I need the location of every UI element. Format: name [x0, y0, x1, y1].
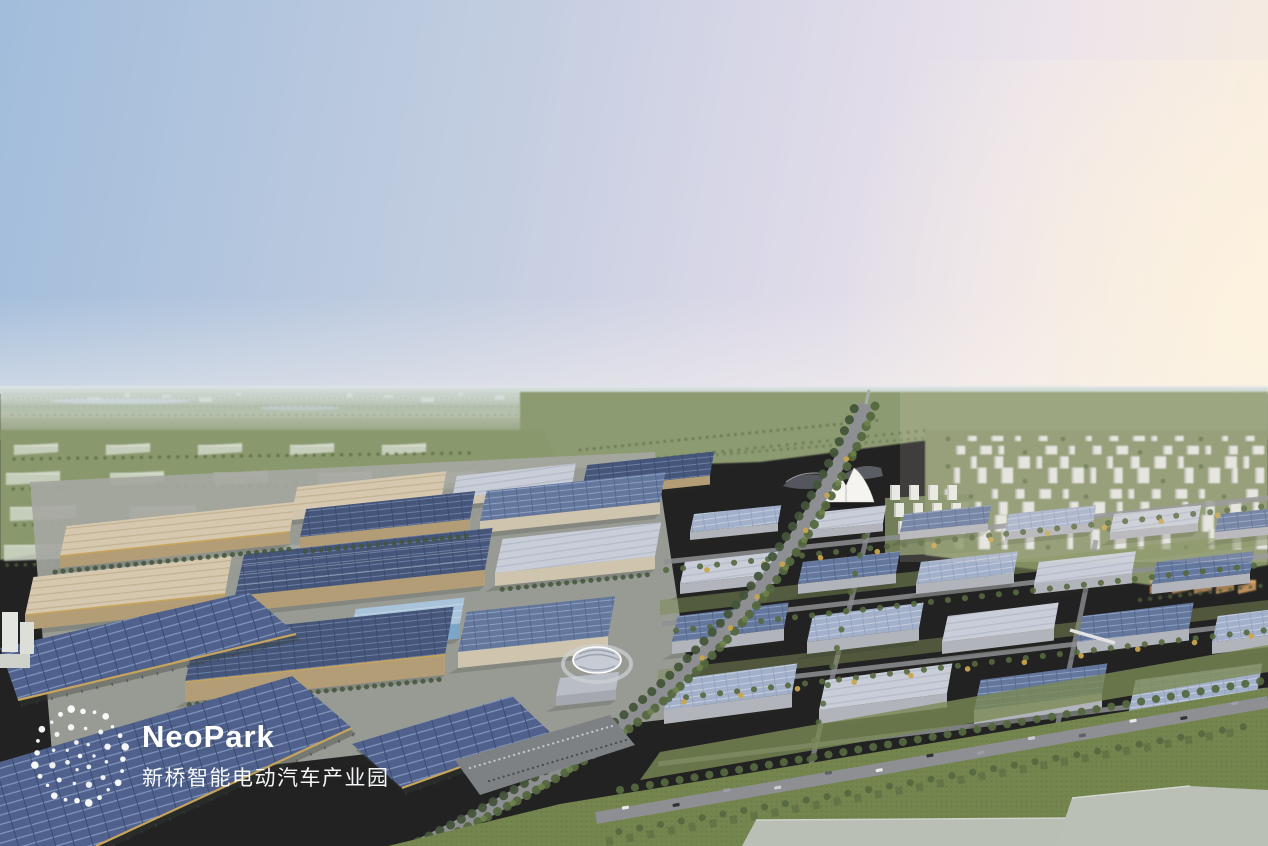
warehouse-building	[1067, 603, 1194, 660]
foreground-rooftop	[742, 818, 1092, 846]
brand-subtitle: 新桥智能电动汽车产业园	[142, 762, 390, 792]
warehouse-building	[680, 505, 781, 546]
dot-cluster-logo-icon	[28, 702, 132, 810]
warehouse-building	[932, 603, 1059, 660]
logo-text: NeoPark 新桥智能电动汽车产业园	[142, 721, 390, 792]
aerial-rendering: NeoPark 新桥智能电动汽车产业园	[0, 0, 1268, 846]
sun-glow	[830, 60, 1268, 394]
atmosphere-haze	[900, 392, 1268, 562]
warehouse-building	[788, 551, 900, 600]
office-tower	[20, 622, 34, 654]
office-tower	[2, 612, 18, 652]
sky	[0, 0, 1268, 394]
brand-name: NeoPark	[142, 721, 390, 752]
neopark-logo: NeoPark 新桥智能电动汽车产业园	[28, 702, 390, 810]
haze-overlay	[900, 392, 1268, 562]
